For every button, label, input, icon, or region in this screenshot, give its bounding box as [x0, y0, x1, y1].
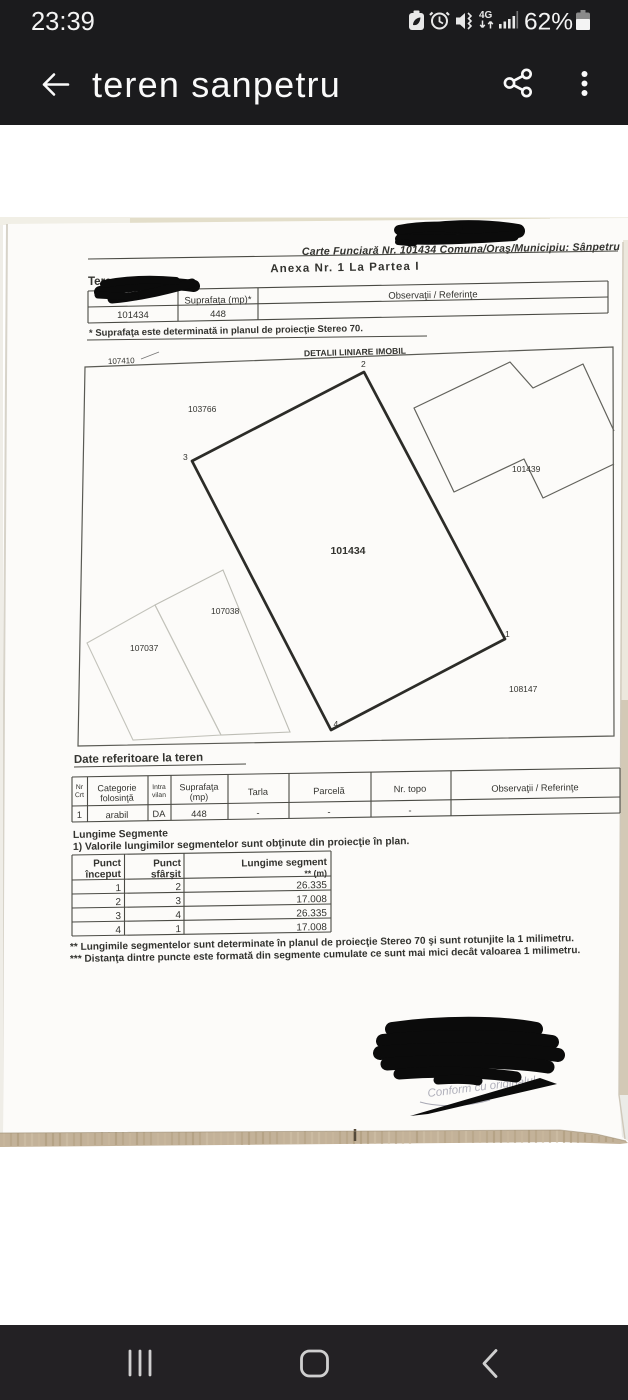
- svg-text:3: 3: [183, 452, 188, 462]
- svg-text:26.335: 26.335: [296, 880, 327, 892]
- svg-text:2: 2: [361, 359, 366, 369]
- svg-text:Nr. topo: Nr. topo: [394, 784, 427, 795]
- svg-text:început: început: [84, 869, 121, 881]
- svg-text:Lungime Segmente: Lungime Segmente: [73, 828, 168, 841]
- svg-text:448: 448: [210, 309, 226, 320]
- svg-text:vilan: vilan: [152, 792, 166, 799]
- svg-text:Suprafaţa: Suprafaţa: [179, 782, 218, 793]
- svg-text:3: 3: [115, 911, 121, 922]
- svg-text:4: 4: [334, 719, 339, 729]
- svg-text:Observaţii / Referinţe: Observaţii / Referinţe: [388, 289, 477, 302]
- svg-text:101439: 101439: [512, 464, 541, 474]
- svg-text:26.335: 26.335: [296, 908, 327, 920]
- svg-text:sfârşit: sfârşit: [151, 869, 182, 881]
- svg-text:(mp): (mp): [190, 792, 209, 802]
- svg-text:1: 1: [505, 629, 510, 639]
- svg-text:Nr: Nr: [76, 784, 84, 791]
- svg-text:108147: 108147: [509, 684, 538, 694]
- svg-text:-: -: [327, 807, 330, 817]
- svg-text:1: 1: [77, 810, 82, 820]
- svg-text:4: 4: [115, 925, 121, 936]
- svg-text:23:39: 23:39: [31, 8, 95, 36]
- svg-text:Date referitoare la teren: Date referitoare la teren: [74, 752, 203, 766]
- svg-text:17.008: 17.008: [296, 922, 327, 934]
- svg-text:-: -: [256, 808, 259, 818]
- svg-text:103766: 103766: [188, 404, 217, 414]
- svg-text:101434: 101434: [330, 545, 365, 557]
- svg-text:2: 2: [115, 897, 121, 908]
- svg-text:Suprafaţa (mp)*: Suprafaţa (mp)*: [184, 294, 252, 306]
- svg-text:1: 1: [115, 883, 121, 894]
- svg-text:teren sanpetru: teren sanpetru: [92, 64, 341, 105]
- svg-text:101434: 101434: [117, 310, 149, 321]
- svg-text:Observaţii / Referinţe: Observaţii / Referinţe: [491, 782, 578, 794]
- svg-text:Crt: Crt: [75, 792, 84, 799]
- svg-text:Parcelă: Parcelă: [313, 786, 346, 797]
- svg-text:Punct: Punct: [93, 858, 122, 869]
- svg-text:17.008: 17.008: [296, 894, 327, 906]
- svg-text:3: 3: [175, 896, 181, 907]
- svg-text:-: -: [408, 805, 411, 815]
- svg-text:107037: 107037: [130, 643, 159, 653]
- svg-text:2: 2: [175, 882, 181, 893]
- svg-text:448: 448: [191, 809, 207, 819]
- svg-text:arabil: arabil: [105, 810, 128, 820]
- svg-text:107410: 107410: [108, 356, 136, 366]
- svg-text:** (m): ** (m): [304, 868, 327, 878]
- svg-text:Punct: Punct: [153, 858, 182, 869]
- svg-text:62%: 62%: [524, 9, 573, 36]
- svg-text:4: 4: [175, 910, 181, 921]
- svg-text:4G: 4G: [479, 10, 493, 21]
- svg-text:107038: 107038: [211, 606, 240, 616]
- svg-text:folosinţă: folosinţă: [100, 793, 134, 804]
- svg-text:Tarla: Tarla: [248, 787, 269, 797]
- svg-text:Intra: Intra: [152, 784, 166, 791]
- svg-text:DA: DA: [152, 809, 166, 819]
- svg-text:1: 1: [175, 924, 181, 935]
- svg-text:Categorie: Categorie: [97, 783, 136, 794]
